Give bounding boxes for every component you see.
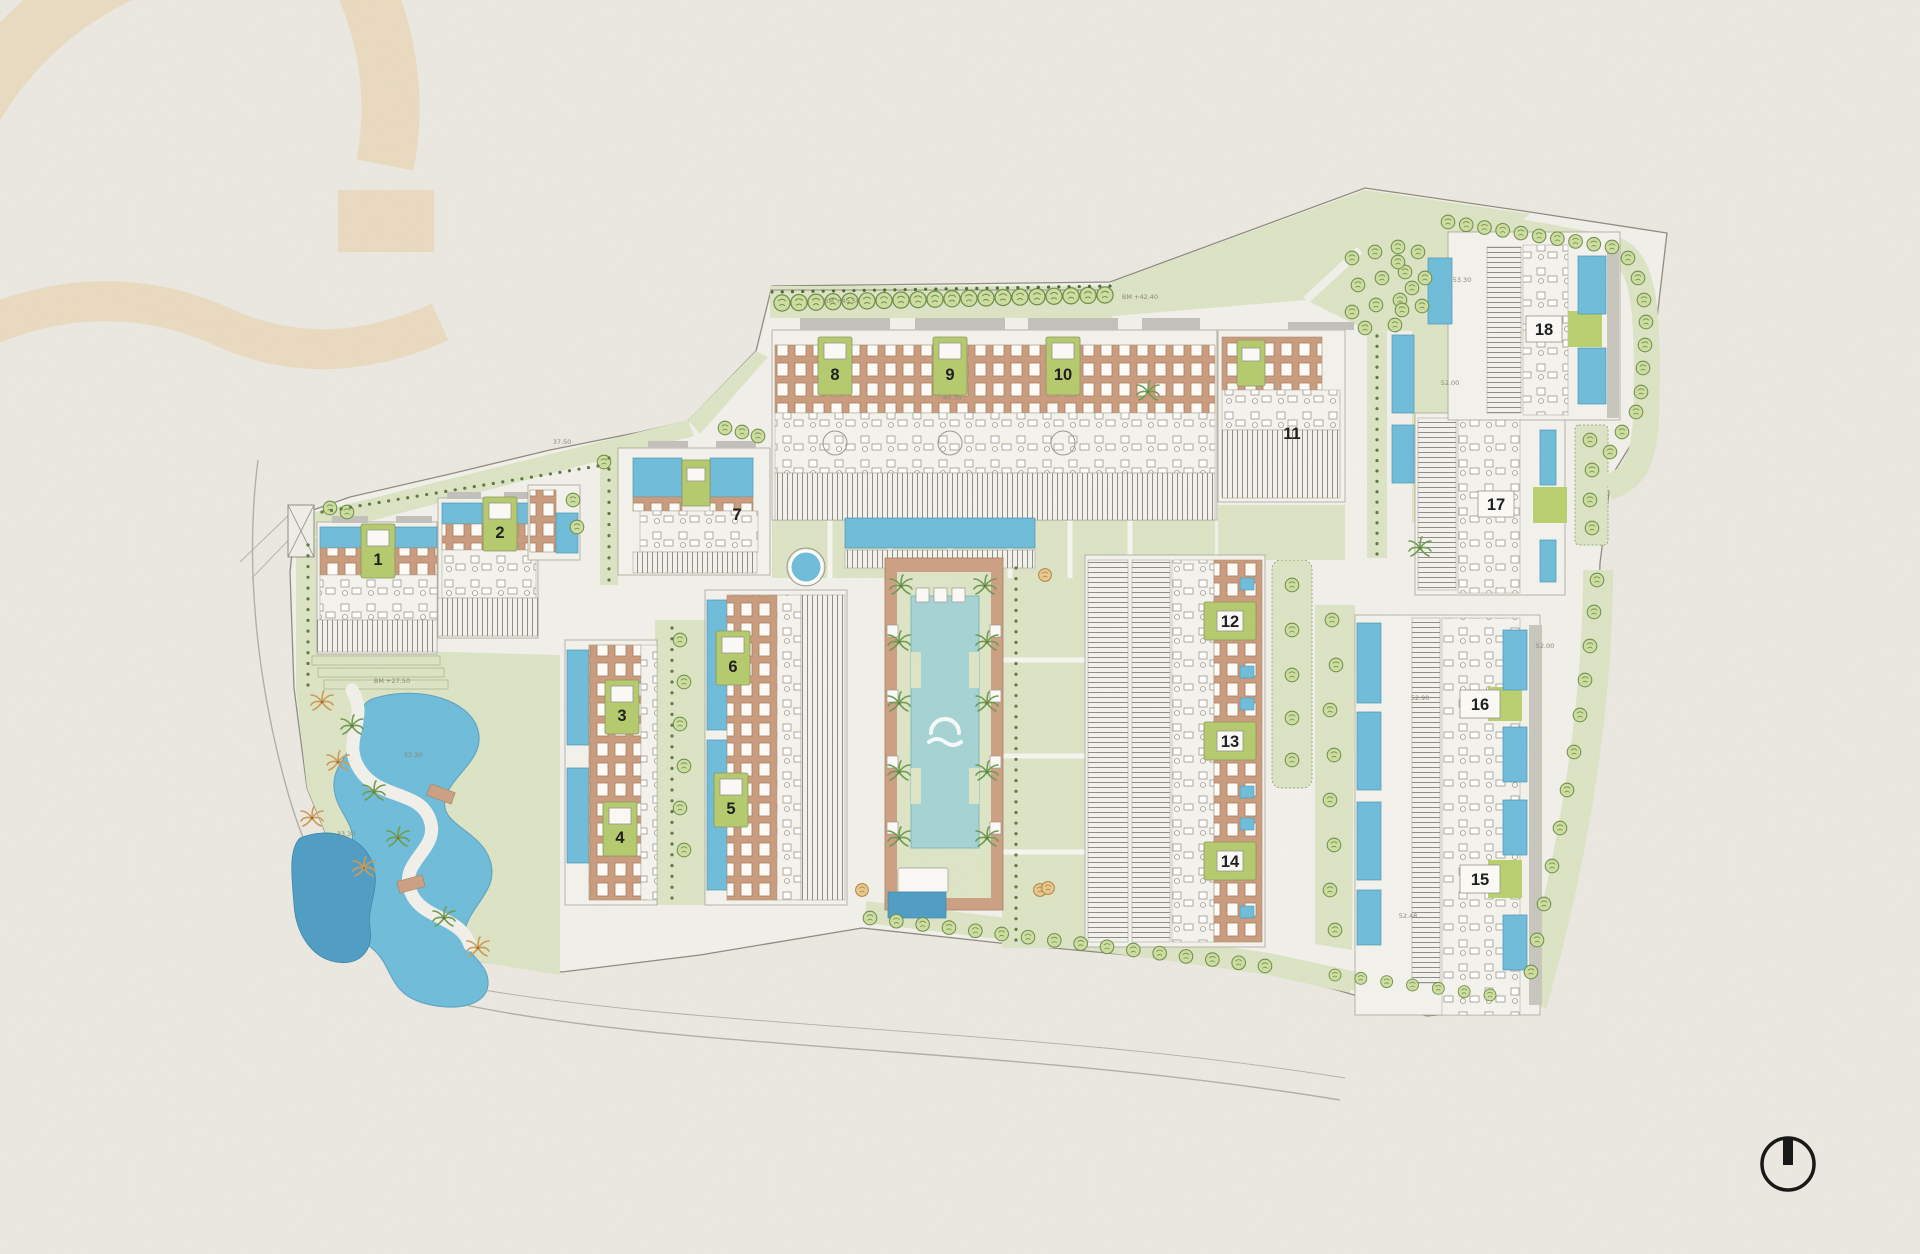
site-plan-canvas: 1 2 3 4 5 6 7 8 9 10 11	[0, 0, 1920, 1254]
paper-texture-overlay	[0, 0, 1920, 1254]
site-plan-drawing: 1 2 3 4 5 6 7 8 9 10 11	[0, 0, 1920, 1254]
